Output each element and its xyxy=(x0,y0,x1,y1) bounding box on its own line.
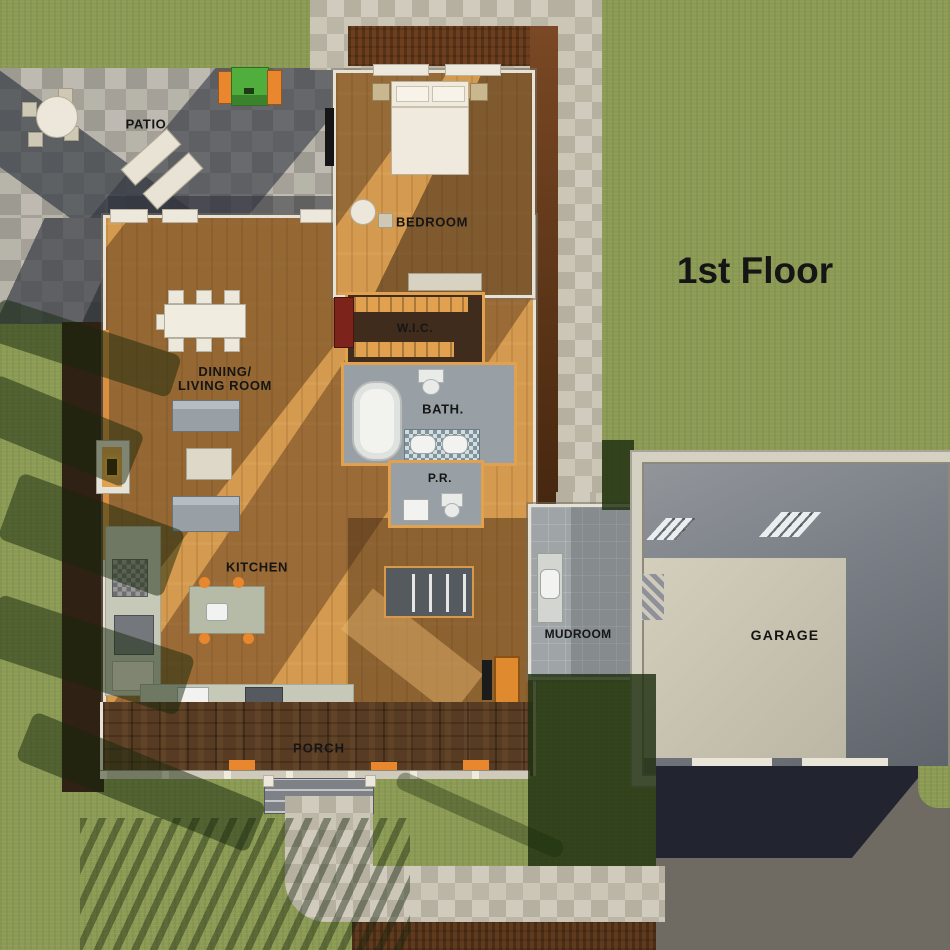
garage xyxy=(632,452,950,786)
nightstand-left xyxy=(372,83,390,101)
kitchen-label: KITCHEN xyxy=(226,560,288,575)
mulch-bed-top xyxy=(348,26,530,66)
wic-label: W.I.C. xyxy=(397,321,433,335)
bath-sink-1 xyxy=(410,435,436,454)
dining-set xyxy=(156,290,252,352)
living-window-1 xyxy=(110,209,148,223)
wic-cabinet-top xyxy=(354,297,468,312)
driveway-grass-corner xyxy=(918,766,950,808)
mudroom-sink xyxy=(540,569,560,599)
kitchen-island xyxy=(189,586,265,634)
step-post-left xyxy=(263,775,274,787)
bedroom-floor xyxy=(333,70,535,298)
porch-label: PORCH xyxy=(293,741,345,756)
garage-side-shadow xyxy=(602,440,634,510)
grill-right-shelf xyxy=(267,70,282,105)
stair-risers xyxy=(412,574,468,612)
stone-strip-right xyxy=(558,0,602,506)
tree-shadow-stripes xyxy=(80,818,410,950)
patio-label: PATIO xyxy=(126,117,167,132)
entry-door-gap xyxy=(482,660,492,700)
bedroom-side-chair xyxy=(378,213,393,228)
grill xyxy=(218,66,280,106)
red-dresser xyxy=(334,297,354,348)
bedroom-label: BEDROOM xyxy=(396,215,468,230)
bedroom-dresser xyxy=(408,273,482,291)
garage-window-glyph-1 xyxy=(646,518,696,540)
stool-3 xyxy=(199,633,210,644)
island-sink xyxy=(206,603,228,621)
stool-4 xyxy=(243,633,254,644)
coffee-table xyxy=(186,448,232,480)
garage-ramp-hatch xyxy=(638,574,664,620)
pr-sink xyxy=(403,499,429,521)
chimney xyxy=(325,108,334,166)
garage-label: GARAGE xyxy=(751,627,820,643)
garage-door-gap-2 xyxy=(802,758,888,766)
bathtub xyxy=(352,381,402,461)
dining-chair-5 xyxy=(196,338,212,352)
pr-toilet-bowl xyxy=(444,503,460,518)
living-window-2 xyxy=(162,209,198,223)
bath-label: BATH. xyxy=(422,402,464,417)
staircase xyxy=(384,566,474,618)
patio-chair-4 xyxy=(28,132,43,147)
patio-surface xyxy=(0,68,336,218)
patio-round-table xyxy=(36,96,78,138)
bedroom-window-1 xyxy=(373,64,429,76)
dining-living-label: DINING/ LIVING ROOM xyxy=(178,365,272,393)
dining-chair-1 xyxy=(168,290,184,304)
step-post-right xyxy=(365,775,376,787)
floor-plan-scene: PATIO BEDROOM W.I.C. DINING/ LIVING ROOM… xyxy=(0,0,950,950)
wic-cabinet-bottom xyxy=(354,342,454,357)
mudroom-shadow xyxy=(571,507,637,677)
dining-label-line2: LIVING ROOM xyxy=(178,379,272,393)
dining-chair-6 xyxy=(224,338,240,352)
bed-pillow-2 xyxy=(432,86,465,102)
dining-chair-3 xyxy=(224,290,240,304)
dining-table xyxy=(164,304,246,338)
garage-floor-pad xyxy=(644,558,846,758)
stool-2 xyxy=(233,577,244,588)
bath-sink-2 xyxy=(442,435,468,454)
garage-window-glyph-2 xyxy=(759,512,822,537)
grill-knob xyxy=(244,88,254,94)
garage-door-gap-1 xyxy=(692,758,772,766)
pr-label: P.R. xyxy=(428,471,452,485)
dining-chair-4 xyxy=(168,338,184,352)
nightstand-right xyxy=(470,83,488,101)
grill-body xyxy=(231,67,269,106)
mudroom-label: MUDROOM xyxy=(545,627,612,641)
dining-label-line1: DINING/ xyxy=(178,365,272,379)
bed-fold-line xyxy=(392,106,468,108)
bed xyxy=(391,81,469,175)
floor-title: 1st Floor xyxy=(677,250,833,292)
dining-chair-2 xyxy=(196,290,212,304)
bedroom-side-table xyxy=(350,199,376,225)
sofa-1 xyxy=(172,400,240,432)
sofa-2 xyxy=(172,496,240,532)
bedroom-window-2 xyxy=(445,64,501,76)
stool-1 xyxy=(199,577,210,588)
patio-chair-1 xyxy=(22,102,37,117)
bed-pillow-1 xyxy=(396,86,429,102)
bath-toilet-bowl xyxy=(422,379,440,395)
mudroom-floor xyxy=(528,504,640,680)
entry-door xyxy=(494,656,520,706)
